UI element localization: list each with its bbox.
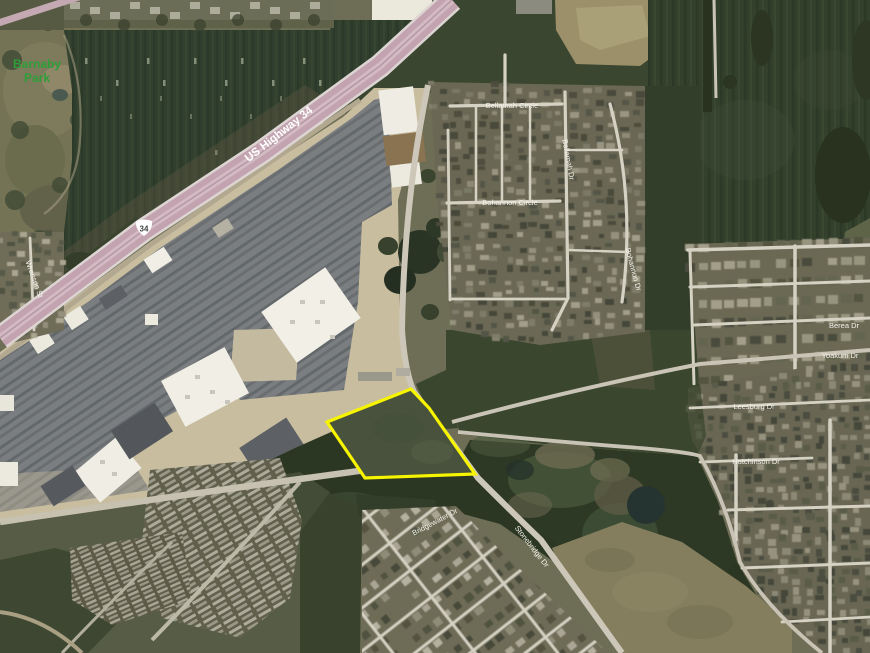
svg-text:Yoakum Dr: Yoakum Dr <box>822 351 859 360</box>
svg-text:Bohannon Circle: Bohannon Circle <box>482 198 537 207</box>
svg-text:Berea Dr: Berea Dr <box>829 321 860 330</box>
svg-text:Leesburg Dr: Leesburg Dr <box>733 402 775 411</box>
svg-text:34: 34 <box>140 225 149 234</box>
svg-text:Park: Park <box>24 71 50 85</box>
svg-text:Bellamah Circle: Bellamah Circle <box>486 101 539 110</box>
svg-text:Hutchinson Dr: Hutchinson Dr <box>732 457 780 466</box>
svg-text:Barnaby: Barnaby <box>13 57 61 71</box>
